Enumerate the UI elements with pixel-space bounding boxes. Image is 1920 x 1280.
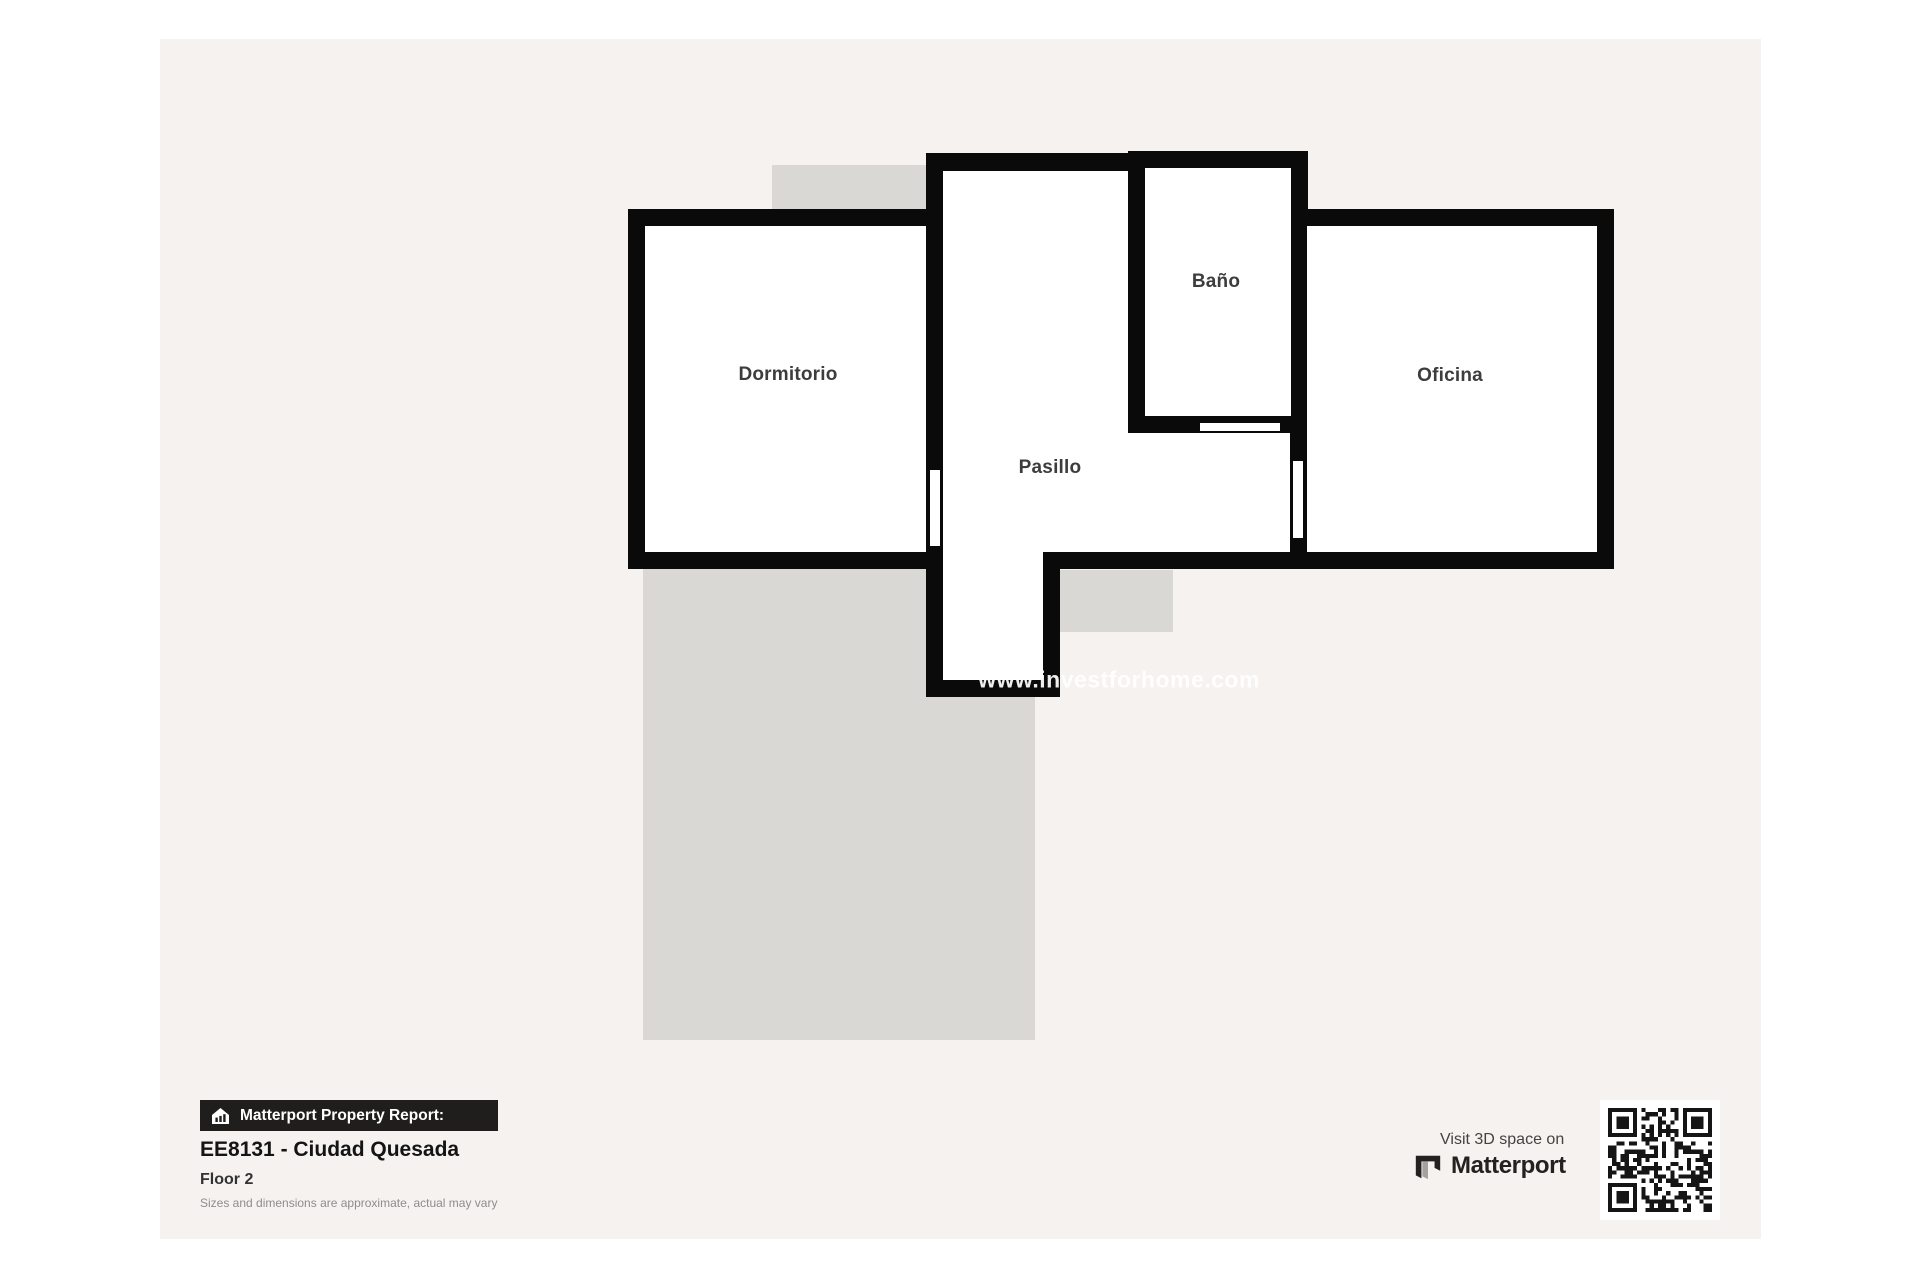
matterport-wordmark: Matterport bbox=[1451, 1152, 1566, 1180]
room-floor-dormitorio bbox=[645, 226, 926, 552]
house-chart-icon bbox=[210, 1107, 231, 1125]
badge-label: Matterport Property Report: bbox=[240, 1107, 444, 1125]
visit-3d-text: Visit 3D space on bbox=[1440, 1131, 1564, 1149]
wall-segment bbox=[926, 153, 1145, 171]
door-opening bbox=[930, 470, 940, 546]
floorplan-canvas: Dormitorio Pasillo Baño Oficina www.inve… bbox=[160, 39, 1761, 1239]
room-floor-pasillo bbox=[1128, 433, 1290, 552]
qr-code bbox=[1600, 1100, 1720, 1220]
floor-label: Floor 2 bbox=[200, 1171, 253, 1189]
room-label-oficina: Oficina bbox=[1417, 365, 1483, 387]
floor-below-shadow bbox=[772, 165, 927, 209]
wall-segment bbox=[1043, 552, 1614, 569]
watermark: www.investforhome.com bbox=[978, 667, 1260, 694]
room-floor-pasillo bbox=[943, 171, 1128, 552]
door-opening bbox=[1293, 461, 1303, 538]
disclaimer-text: Sizes and dimensions are approximate, ac… bbox=[200, 1196, 497, 1210]
room-floor-oficina bbox=[1307, 226, 1597, 552]
room-label-pasillo: Pasillo bbox=[1019, 457, 1082, 479]
wall-segment bbox=[926, 171, 943, 697]
matterport-logo-icon bbox=[1413, 1151, 1443, 1181]
room-label-bano: Baño bbox=[1192, 271, 1240, 293]
property-report-badge: Matterport Property Report: bbox=[200, 1100, 498, 1131]
matterport-brand: Matterport bbox=[1413, 1151, 1566, 1181]
floor-below-shadow bbox=[1060, 570, 1173, 632]
room-label-dormitorio: Dormitorio bbox=[738, 364, 837, 386]
door-opening bbox=[1200, 423, 1280, 431]
property-title: EE8131 - Ciudad Quesada bbox=[200, 1138, 459, 1162]
room-floor-pasillo bbox=[943, 552, 1043, 680]
